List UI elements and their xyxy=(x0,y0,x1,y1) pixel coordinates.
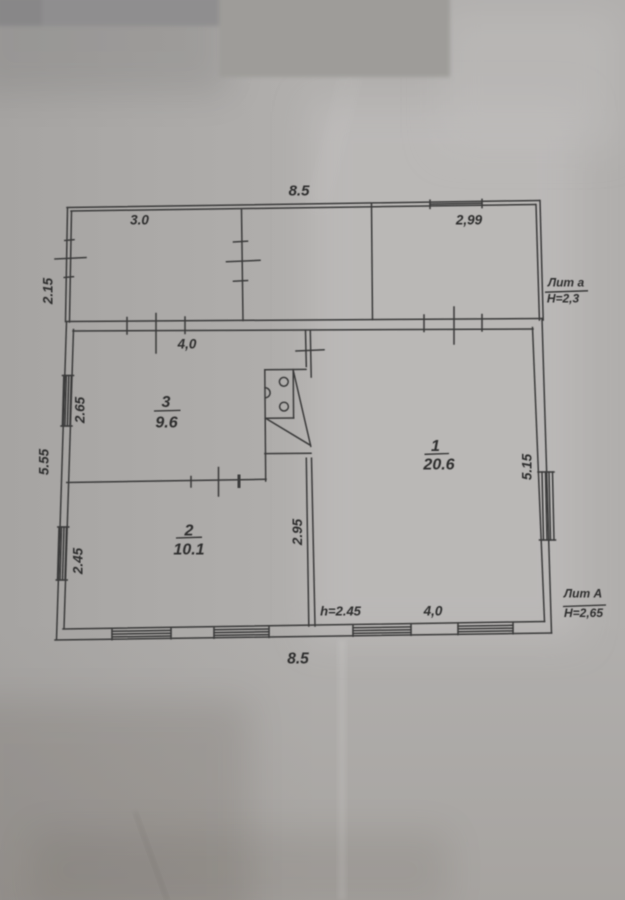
svg-text:5.15: 5.15 xyxy=(520,453,535,480)
svg-text:3.0: 3.0 xyxy=(130,213,149,228)
svg-text:2,99: 2,99 xyxy=(455,213,483,228)
svg-text:Н=2,65: Н=2,65 xyxy=(564,606,603,620)
svg-text:9.6: 9.6 xyxy=(155,415,177,432)
svg-text:4,0: 4,0 xyxy=(423,604,443,619)
svg-text:20.6: 20.6 xyxy=(422,457,454,474)
svg-text:8.5: 8.5 xyxy=(289,183,311,200)
svg-text:5.55: 5.55 xyxy=(37,448,52,475)
svg-text:Н=2,3: Н=2,3 xyxy=(547,292,580,306)
svg-text:2.65: 2.65 xyxy=(73,396,88,424)
svg-text:10.1: 10.1 xyxy=(173,542,204,559)
svg-text:1: 1 xyxy=(431,438,440,455)
svg-text:2.15: 2.15 xyxy=(41,277,56,305)
svg-text:2.95: 2.95 xyxy=(290,518,305,546)
svg-text:h=2.45: h=2.45 xyxy=(320,604,362,619)
svg-text:8.5: 8.5 xyxy=(287,651,309,668)
svg-text:4,0: 4,0 xyxy=(177,337,197,352)
svg-text:Лит А: Лит А xyxy=(563,587,602,601)
svg-text:Лит а: Лит а xyxy=(547,276,585,290)
svg-text:3: 3 xyxy=(162,394,171,411)
svg-text:2.45: 2.45 xyxy=(71,547,86,575)
